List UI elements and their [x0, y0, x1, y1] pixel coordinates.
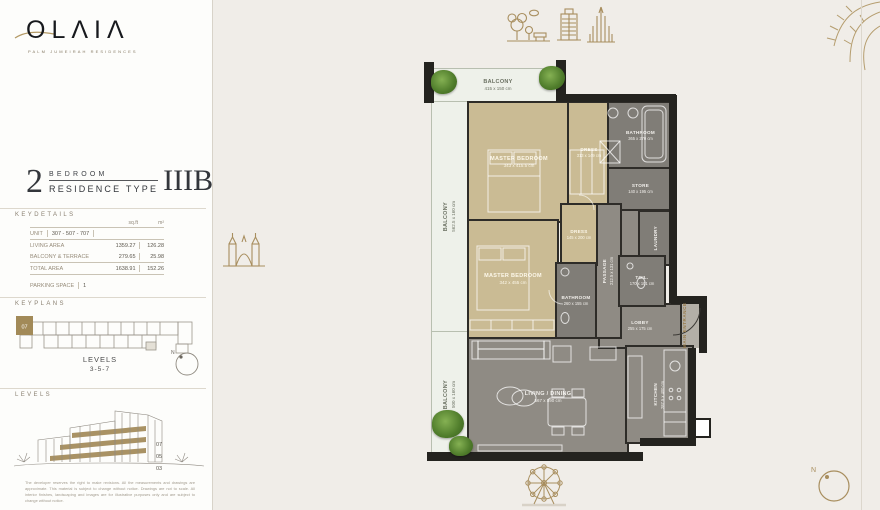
unit-numbers: 307 - 507 - 707: [52, 231, 89, 237]
room-dims: 145 x 200 cm: [567, 235, 592, 240]
room-dims: 365 x 270 cm: [628, 136, 653, 141]
room-balcony-left: BALCONY 562.5 x 160 cm: [431, 101, 468, 332]
service-shaft: [694, 418, 711, 438]
arch-monument-icon: [220, 230, 268, 272]
brand-tagline: PALM JUMEIRAH RESIDENCES: [28, 49, 138, 54]
plan-compass-icon: N: [806, 458, 860, 508]
room-dims: 342 x 455 cm: [499, 280, 526, 286]
room-master-bedroom-2: MASTER BEDROOM 342 x 455 cm: [467, 219, 559, 339]
wall-segment: [640, 438, 696, 446]
room-dims: 170 x 101 cm: [630, 281, 655, 286]
table-row-total: TOTAL AREA 1638.91 152.26: [30, 262, 164, 275]
room-dims: 287.5 x 400 cm: [660, 381, 665, 409]
wall-segment: [699, 296, 707, 353]
row-sqm: 152.26: [143, 266, 165, 272]
row-label: BALCONY & TERRACE: [30, 254, 102, 260]
room-name: BALCONY: [443, 202, 450, 231]
row-sqft: 279.65: [102, 254, 135, 260]
residence-title: 2 BEDROOM RESIDENCE TYPE IIIB: [26, 168, 213, 197]
city-buildings-icon: [557, 9, 581, 40]
building-elevation-drawing: 07 05 03: [10, 400, 210, 478]
room-name: LAUNDRY: [653, 226, 659, 250]
floor-label-05: 05: [156, 454, 162, 460]
table-row: LIVING AREA 1359.27 126.28: [30, 240, 164, 251]
palm-frond-icon: [806, 0, 880, 86]
room-living-dining: LIVING / DINING 567 x 590 cm: [467, 335, 629, 459]
room-dims: 500 x 160 cm: [451, 381, 457, 408]
room-dims: 140 x 195 cm: [628, 189, 653, 194]
compass-n-label: N: [811, 467, 816, 474]
row-sqft: 1638.91: [102, 266, 135, 272]
keyplan-compass-n: N: [171, 350, 175, 356]
unit-label: UNIT: [30, 231, 43, 237]
keyplan-drawing: 07 LEVELS 3-5-7 N: [10, 312, 210, 386]
divider: [0, 208, 206, 209]
floor-label-03: 03: [156, 466, 162, 472]
row-sqm: 126.28: [143, 243, 165, 249]
brochure-page: OLΛIΛ PALM JUMEIRAH RESIDENCES 2 BEDROOM…: [0, 0, 880, 510]
title-bedroom: BEDROOM: [49, 171, 158, 181]
landmark-icons-strip: [505, 4, 617, 48]
table-header: sq.ft m²: [30, 220, 164, 226]
row-label: LIVING AREA: [30, 243, 102, 249]
burj-khalifa-icon: [587, 7, 615, 42]
room-name: LIVING / DINING: [525, 391, 572, 398]
keydetails-heading: KEYDETAILS: [15, 212, 76, 218]
row-label: TOTAL AREA: [30, 266, 102, 272]
park-icon: [507, 10, 550, 41]
main-entrance-label: MAIN ENTRANCE: [682, 300, 687, 348]
room-name: KITCHEN: [653, 383, 659, 406]
col-sqm: m²: [138, 220, 164, 226]
room-dress-1: DRESS 313 x 149 cm: [567, 101, 611, 205]
table-row: BALCONY & TERRACE 279.65 25.98: [30, 251, 164, 262]
divider: [0, 388, 206, 389]
unit-marker-label: 07: [21, 325, 27, 331]
room-dims: 212.5 x 131 cm: [609, 257, 614, 285]
bedroom-count: 2: [26, 168, 43, 197]
room-dims: 567 x 590 cm: [534, 398, 561, 404]
floor-label-07: 07: [156, 442, 162, 448]
title-residence-type: RESIDENCE TYPE: [49, 181, 158, 194]
page-edge-divider: [861, 0, 862, 510]
ferris-wheel-icon: [506, 462, 582, 508]
room-name: PASSAGE: [602, 259, 608, 283]
room-toilet: TOIL. 170 x 101 cm: [618, 255, 666, 307]
brand-logo: OLΛIΛ: [26, 16, 130, 45]
room-dress-2: DRESS 145 x 200 cm: [560, 203, 598, 266]
parking-label: PARKING SPACE: [30, 283, 74, 289]
row-sqm: 25.98: [143, 254, 165, 260]
room-dims: 260 x 155 cm: [564, 301, 589, 306]
room-name: BALCONY: [443, 380, 450, 409]
wall-segment: [669, 95, 677, 303]
room-dims: 255 x 175 cm: [628, 326, 653, 331]
wall-segment: [563, 94, 676, 102]
room-master-bedroom-1: MASTER BEDROOM 343 x 415.5 cm: [467, 101, 571, 223]
room-name: MASTER BEDROOM: [484, 273, 542, 280]
room-dims: 313 x 149 cm: [577, 153, 602, 158]
unit-row: UNIT 307 - 507 - 707: [30, 227, 164, 240]
levels-heading: LEVELS: [15, 392, 52, 398]
room-dims: 562.5 x 160 cm: [451, 201, 457, 232]
room-dims: 343 x 415.5 cm: [504, 163, 535, 169]
left-panel: OLΛIΛ PALM JUMEIRAH RESIDENCES 2 BEDROOM…: [0, 0, 213, 510]
levels-text-line1: LEVELS: [83, 355, 117, 364]
room-dims: 415 x 150 cm: [484, 86, 511, 92]
type-code: IIIB: [163, 168, 213, 194]
parking-value: 1: [83, 283, 86, 289]
col-sqft: sq.ft: [104, 220, 138, 226]
room-bathroom-1: BATHROOM 365 x 270 cm: [607, 101, 674, 171]
divider: [0, 297, 206, 298]
room-kitchen: KITCHEN 287.5 x 400 cm: [625, 345, 694, 444]
row-sqft: 1359.27: [102, 243, 135, 249]
levels-text-line2: 3-5-7: [90, 366, 110, 373]
keyplan-compass-icon: N: [171, 350, 198, 375]
parking-row: PARKING SPACE 1: [30, 282, 164, 289]
room-name: MASTER BEDROOM: [490, 156, 548, 163]
keydetails-table: sq.ft m² UNIT 307 - 507 - 707 LIVING ARE…: [30, 220, 164, 289]
disclaimer-text: The developer reserves the right to make…: [25, 480, 195, 503]
room-bathroom-2: BATHROOM 260 x 155 cm: [555, 262, 597, 339]
keyplans-heading: KEYPLANS: [15, 301, 66, 307]
room-name: BALCONY: [483, 79, 512, 86]
